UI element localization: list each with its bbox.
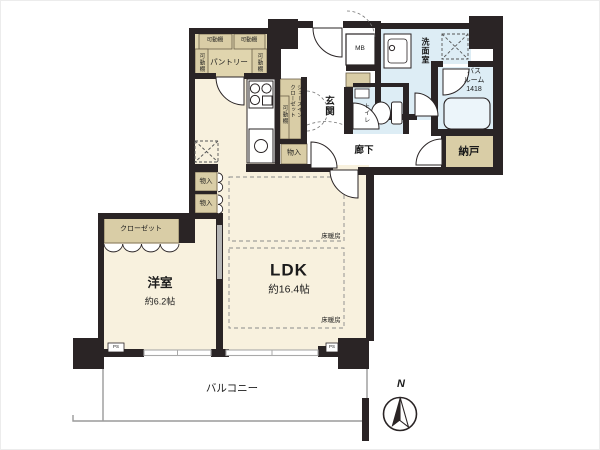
movable-shelf-label: 可動棚: [281, 105, 288, 125]
washroom-label: 洗面室: [420, 38, 430, 65]
bathroom-label: バスルーム1418: [464, 68, 485, 94]
floor-heating-label: 床暖房: [321, 233, 341, 241]
closet-label: クローゼット: [120, 226, 162, 235]
pipe-space-label: PS: [329, 344, 335, 350]
compass-rose-icon: [384, 397, 417, 431]
movable-shelf-label: 可動棚: [241, 38, 258, 45]
movable-shelf-label: 可動棚: [256, 53, 263, 73]
burner-icon: [250, 95, 259, 104]
grill-icon: [263, 96, 273, 105]
ldk-size: 約16.4帖: [268, 283, 309, 296]
burner-icon: [250, 84, 259, 93]
movable-shelf-label: 可動棚: [198, 53, 205, 73]
shoes-in-closet-label: シューズインクローゼット: [288, 85, 302, 118]
ldk-label: LDK: [270, 259, 308, 280]
toilet-label: トイレ: [361, 103, 369, 124]
movable-shelf-label: 可動棚: [207, 38, 224, 45]
hallway-label: 廊下: [354, 145, 373, 157]
kitchen-counter: [247, 79, 275, 163]
floor-plan: 可動棚 可動棚 可動棚 可動棚 パントリー シューズインクローゼット 可動棚 物…: [0, 0, 600, 450]
bathroom-line2: ルーム: [464, 77, 485, 84]
bathtub-icon: [444, 98, 490, 129]
balcony-partition: [362, 398, 369, 441]
pantry-label: パントリー: [210, 57, 248, 66]
bathroom-line1: バス: [467, 68, 481, 75]
windows: [144, 350, 318, 356]
burner-icon: [262, 84, 271, 93]
north-label: N: [397, 378, 405, 392]
western-room-size: 約6.2帖: [145, 296, 176, 307]
storage-label: 物入: [287, 150, 301, 159]
entrance-label: 玄関: [322, 96, 334, 117]
balcony-label: バルコニー: [206, 382, 258, 395]
sliding-door: [217, 225, 222, 279]
wash-basin-icon: [384, 34, 411, 68]
storage-label: 物入: [200, 200, 213, 208]
storage-room-label: 納戸: [459, 145, 480, 158]
front-door: [313, 28, 342, 57]
hallway-door: [311, 142, 337, 168]
floor-heating-label: 床暖房: [321, 317, 341, 325]
shoes-in-closet-line1: シューズイン: [296, 85, 302, 118]
shoes-in-closet-line2: クローゼット: [289, 85, 295, 118]
pipe-space-label: PS: [113, 344, 119, 350]
storage-label: 物入: [200, 178, 213, 186]
floor-plan-drawing: [1, 1, 600, 450]
western-room-label: 洋室: [147, 276, 172, 292]
storage-room-door: [416, 139, 442, 165]
meter-box-label: MB: [355, 45, 365, 53]
bathroom-line3: 1418: [466, 85, 482, 92]
